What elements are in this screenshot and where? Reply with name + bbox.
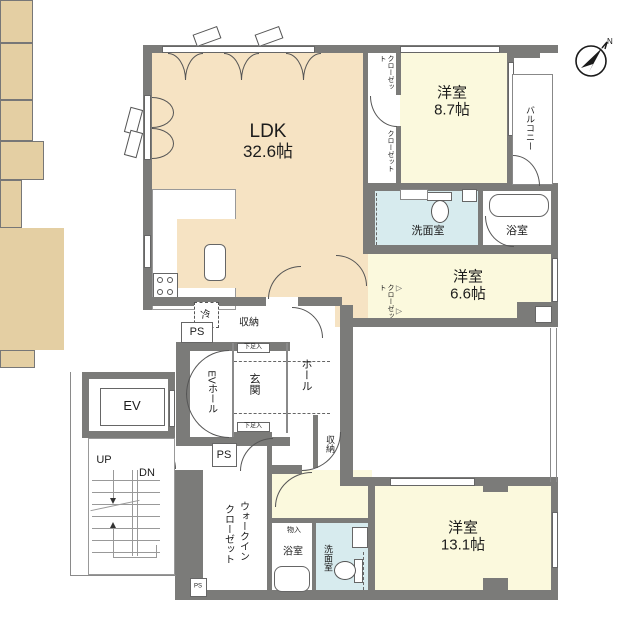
genkan-label: 玄関: [248, 373, 260, 395]
bathtub-bottom: [274, 566, 310, 592]
window: [144, 95, 151, 160]
storage-hall: [0, 180, 22, 228]
bedroom2-size: 6.6帖: [450, 286, 486, 303]
ev-shaft-wall: [82, 431, 175, 438]
storage-hall-label: 収納: [324, 435, 334, 453]
stove-burner-icon: [157, 289, 163, 295]
vent-flag-icon: [255, 26, 284, 47]
closet-bedroom2: [0, 100, 33, 141]
void-boundary-line: [556, 328, 557, 482]
wall-niche: [535, 306, 552, 323]
kitchen-sink: [204, 244, 226, 281]
stair-tread: [92, 516, 160, 517]
compass-icon: N: [567, 34, 617, 84]
arrow-down-icon: [110, 498, 116, 504]
ldk-name: LDK: [243, 122, 293, 143]
wall-segment: [340, 305, 353, 482]
stairs-up-label: UP: [96, 454, 111, 466]
wall-segment: [298, 297, 342, 306]
small-sink: [462, 189, 477, 202]
balcony-label: バルコニー: [524, 106, 534, 151]
bedroom3-name: 洋室: [441, 521, 485, 538]
ev-shaft-wall: [82, 372, 89, 438]
ev-shaft-wall: [82, 372, 175, 379]
window: [400, 46, 500, 53]
storage-top: [0, 141, 44, 180]
ev-hall-label: EVホール: [206, 370, 217, 413]
stove-burner-icon: [157, 277, 163, 283]
bedroom1-name: 洋室: [434, 86, 470, 103]
washroom-bottom-label: 洗面室: [322, 545, 332, 572]
monoire-storage: [0, 350, 35, 368]
closet-top-label: クローゼット: [368, 55, 394, 94]
closet-mid: [0, 43, 33, 100]
window: [552, 512, 558, 568]
wall-segment: [396, 52, 401, 95]
toilet-bowl: [431, 200, 449, 223]
bedroom2-name: 洋室: [450, 270, 486, 287]
arrow-up-icon: [110, 522, 116, 528]
bedroom3-label: 洋室 13.1帖: [441, 521, 485, 554]
wall-segment: [312, 522, 316, 592]
common-area-line: [70, 372, 71, 576]
wall-pillar: [483, 578, 508, 592]
storage-top-label: 収納: [239, 318, 259, 329]
folding-door-icon: ▷: [396, 308, 402, 317]
wall-segment: [267, 470, 272, 592]
wall-segment: [232, 432, 272, 437]
floor-plan: ▷ ▷ LDK 32.6帖 洋室 8.7帖 洋室 6.6帖 洋室 13.1帖 バ…: [0, 0, 640, 640]
stairs-dn-label: DN: [139, 467, 155, 479]
ev-door-opening: [169, 390, 175, 427]
stair-tread: [92, 540, 160, 541]
door-arc-hall-bottom: [302, 432, 341, 471]
partition-line: [286, 343, 288, 433]
fixture-dash-line: [363, 552, 364, 590]
door-arc-bedroom1: [370, 96, 397, 127]
monoire-label: 物入: [287, 527, 301, 535]
hall-label: ホール: [300, 359, 312, 392]
closet-mid-label: クローゼット: [368, 130, 394, 181]
stair-tread: [92, 492, 160, 493]
stove-burner-icon: [167, 277, 173, 283]
stair-arrow-line: [113, 470, 114, 498]
wall-segment: [507, 45, 540, 58]
genkan-step-line: [234, 413, 330, 414]
bathtub-top: [489, 194, 549, 217]
ev-label: EV: [123, 399, 140, 413]
bedroom3-size: 13.1帖: [441, 537, 485, 554]
door-arc-hall-top: [292, 307, 323, 338]
shoe-top-label: 下足入: [244, 345, 262, 352]
closet-top: [0, 0, 33, 43]
wic-label-line1: ウォークイン: [238, 501, 249, 561]
wall-segment: [363, 191, 375, 253]
ps-mid-label: PS: [217, 449, 232, 461]
bedroom1-size: 8.7帖: [434, 102, 470, 119]
wall-segment: [272, 465, 302, 474]
stair-tread: [92, 504, 160, 505]
wall-segment: [272, 518, 368, 523]
small-sink: [352, 527, 368, 548]
washroom-top-label: 洗面室: [412, 225, 445, 237]
partition-line: [232, 343, 234, 437]
wic-label-line2: クローゼット: [223, 504, 234, 564]
common-area-line: [70, 575, 176, 576]
compass-north-label: N: [607, 37, 613, 46]
accordion-door: [376, 193, 377, 245]
stair-turn-line: [113, 545, 157, 558]
wall-pillar: [483, 478, 508, 492]
stair-tread: [92, 480, 160, 481]
folding-door-icon: ▷: [396, 285, 402, 294]
window: [144, 235, 151, 268]
ldk-label: LDK 32.6帖: [243, 122, 293, 162]
window: [162, 46, 315, 53]
ps-top-label: PS: [190, 326, 205, 338]
wall-segment: [396, 126, 401, 183]
bath-bottom-label: 浴室: [283, 547, 303, 558]
ps-small-label: PS: [194, 584, 202, 591]
window: [390, 478, 475, 486]
stove-burner-icon: [167, 289, 173, 295]
genkan-step-line: [234, 361, 330, 362]
vanity-counter: [400, 189, 428, 200]
bedroom1-label: 洋室 8.7帖: [434, 86, 470, 119]
walk-in-closet: [0, 228, 64, 350]
bedroom2-label: 洋室 6.6帖: [450, 270, 486, 303]
wall-segment: [363, 245, 558, 254]
window: [552, 258, 558, 302]
toilet-bowl: [334, 561, 356, 580]
wall-segment: [478, 191, 483, 245]
ldk-size: 32.6帖: [243, 143, 293, 162]
stair-tread: [92, 528, 160, 529]
shoe-bottom-label: 下足入: [244, 424, 262, 431]
wall-segment: [368, 485, 375, 592]
void-boundary-line: [550, 328, 551, 482]
closet-bedroom2-label: クローゼット: [368, 284, 394, 321]
wall-segment: [143, 45, 152, 310]
bath-top-label: 浴室: [506, 225, 528, 237]
stair-divider: [132, 470, 138, 556]
vent-flag-icon: [124, 130, 143, 158]
vent-flag-icon: [193, 26, 222, 47]
